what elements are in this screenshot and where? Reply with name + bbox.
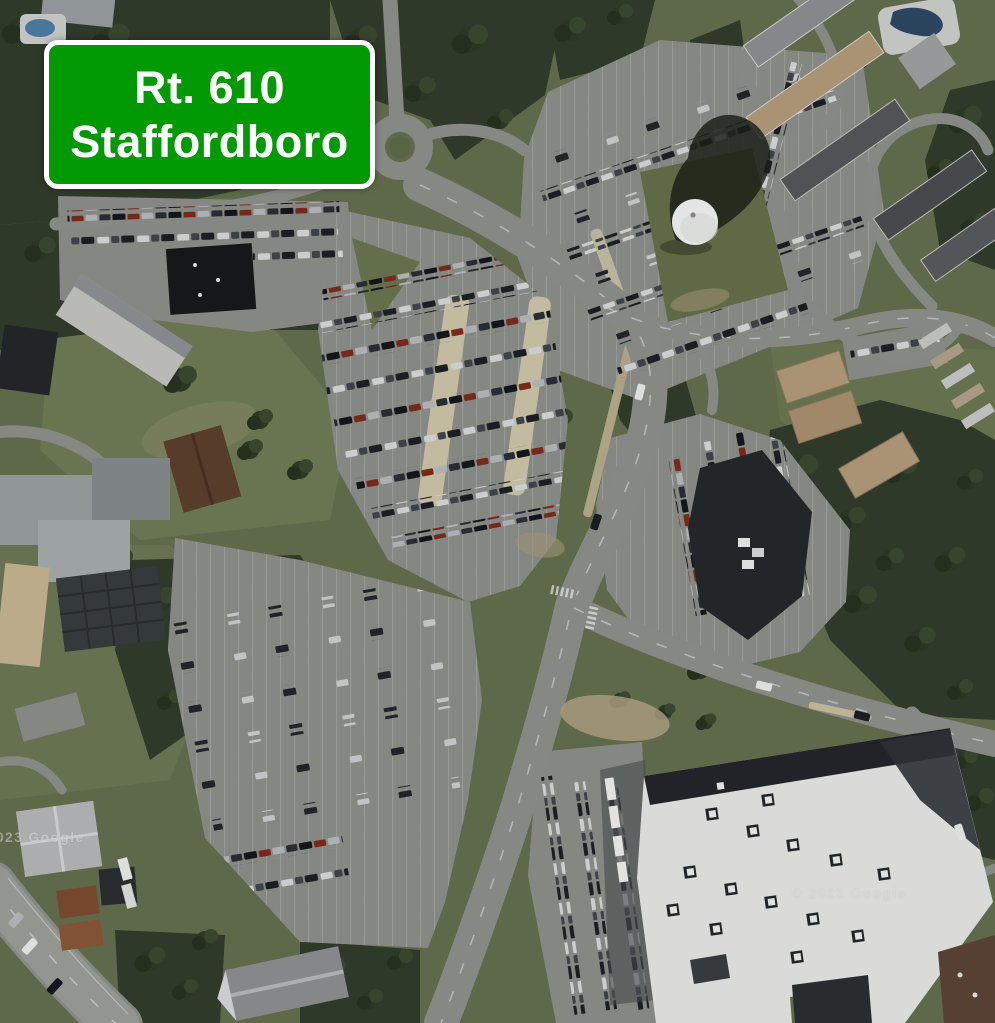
route-sign-line2: Staffordboro (70, 115, 348, 168)
google-watermark-left: © 2023 Google (0, 830, 85, 845)
google-watermark-right: © 2023 Google (792, 886, 907, 901)
aerial-screenshot: Rt. 610 Staffordboro © 2023 Google © 202… (0, 0, 995, 1023)
route-sign: Rt. 610 Staffordboro (44, 40, 375, 189)
route-sign-line1: Rt. 610 (134, 61, 285, 114)
